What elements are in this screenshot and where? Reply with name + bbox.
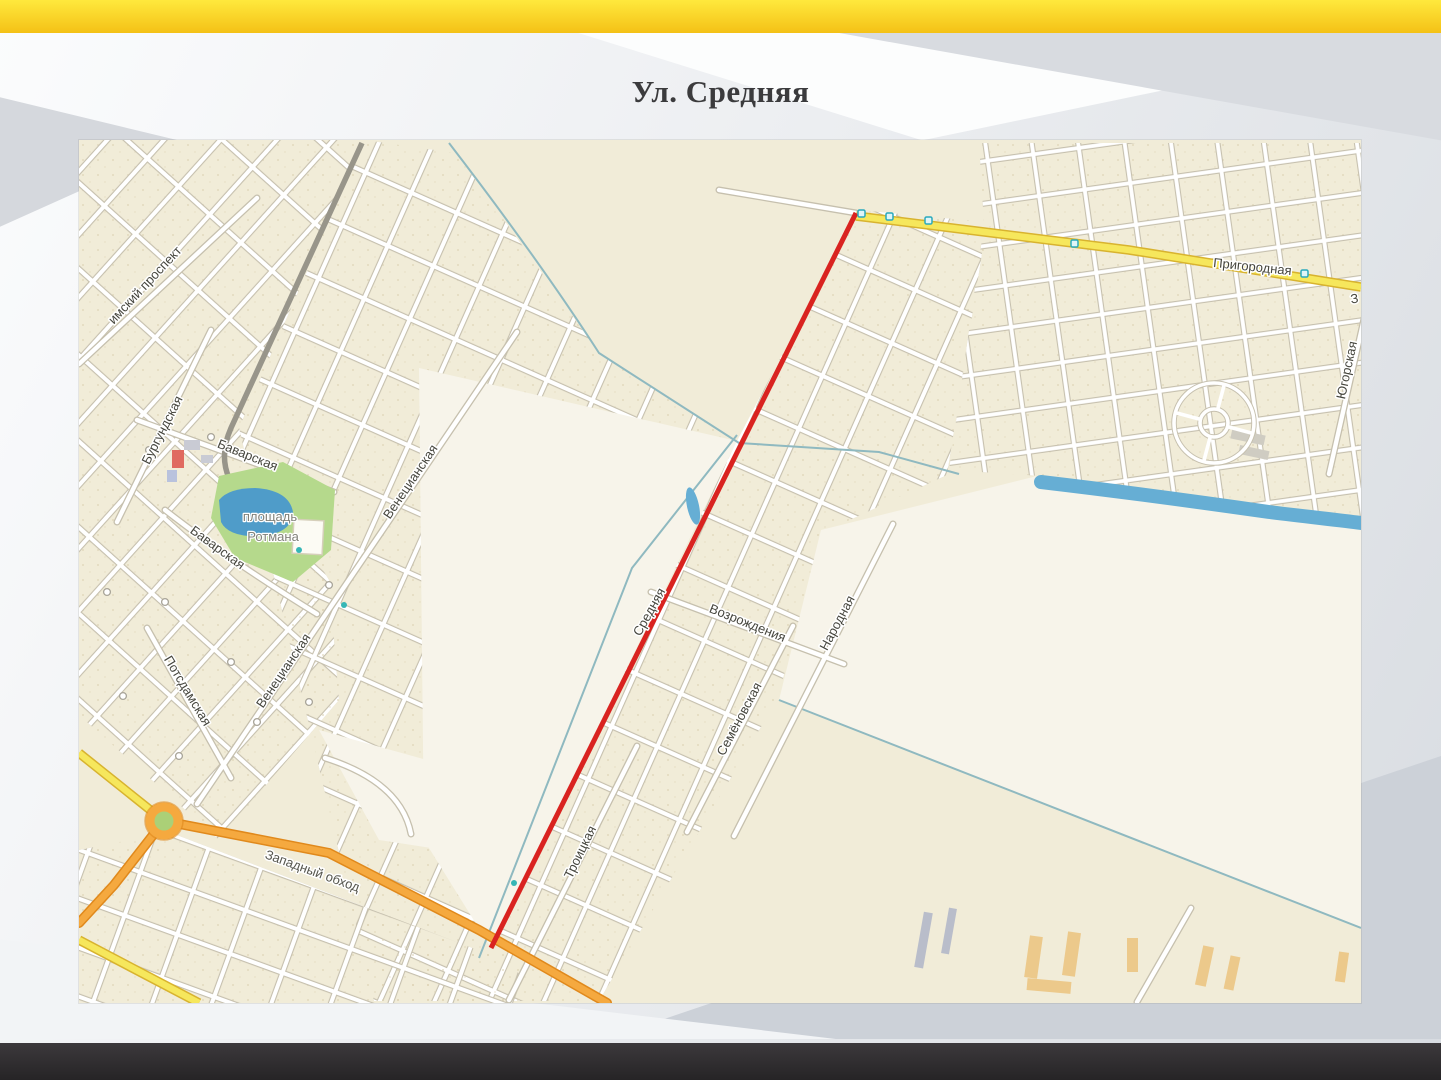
slide-background: Ул. Средняя — [0, 0, 1441, 1080]
map-canvas: имский проспектБургундскаяБаварскаяБавар… — [79, 140, 1361, 1003]
bottom-dark-bar — [0, 1043, 1441, 1080]
page-title: Ул. Средняя — [0, 74, 1441, 110]
poi-label: площадь — [243, 509, 298, 524]
map-image: имский проспектБургундскаяБаварскаяБавар… — [79, 140, 1361, 1003]
top-yellow-bar — [0, 0, 1441, 33]
roundabout — [145, 802, 183, 840]
poi-label: Ротмана — [247, 529, 299, 544]
